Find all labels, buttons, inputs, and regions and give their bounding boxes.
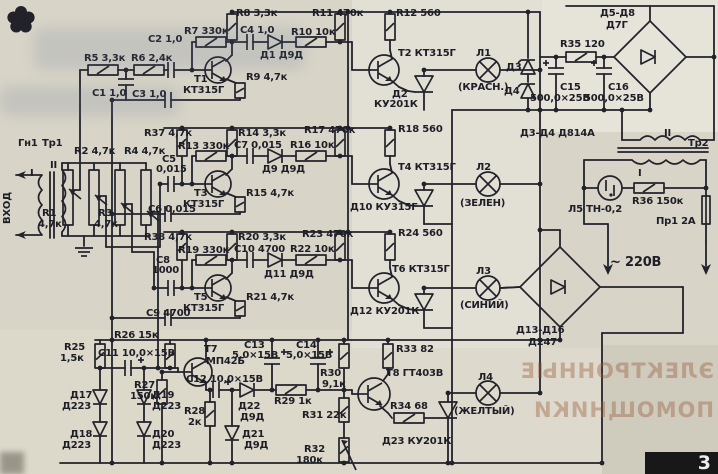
component-label: Д12 КУ201К [350, 306, 420, 317]
component-label: С7 0,015 [234, 140, 282, 151]
component-label: Д9Д [244, 440, 268, 451]
component-label: R26 15к [114, 330, 159, 341]
component-label: Д10 КУ315Г [350, 202, 418, 213]
component-label: (КРАСН.) [458, 82, 508, 93]
junction-dot [158, 182, 163, 187]
junction-dot [338, 40, 343, 45]
component-label: Д20 [152, 429, 174, 440]
component-label: С6 0,015 [148, 204, 196, 215]
junction-dot [338, 258, 343, 263]
component-label: Д7Г [606, 20, 628, 31]
ink-smudge [0, 452, 24, 474]
component-label: КУ201К [374, 99, 419, 110]
component-label: Д247 [528, 337, 557, 348]
junction-dot [422, 182, 427, 187]
junction-dot [602, 108, 607, 113]
junction-dot [388, 10, 393, 15]
neon-lamp-symbol [609, 193, 612, 196]
potentiometer-symbol [141, 170, 151, 225]
component-label: Д3 [506, 62, 522, 73]
resistor-symbol [236, 88, 244, 93]
component-label: Д19 [152, 390, 174, 401]
junction-dot [558, 338, 563, 343]
junction-dot [446, 391, 451, 396]
resistor-symbol [236, 202, 244, 207]
component-label: I [638, 168, 642, 179]
junction-dot [538, 391, 543, 396]
component-label: Т7 [204, 344, 218, 355]
component-label: Д223 [152, 401, 181, 412]
component-label: R4 4,7к [124, 146, 166, 157]
component-label: R14 3,3к [238, 128, 286, 139]
component-label: Д21 [242, 429, 264, 440]
component-label: С11 10,0×15В [98, 348, 175, 359]
component-label: R37 4,7к [144, 128, 192, 139]
component-label: R33 82 [396, 344, 434, 355]
page-number-box: 3 [645, 452, 718, 474]
component-label: Д5-Д8 [600, 8, 635, 19]
junction-dot [230, 126, 235, 131]
junction-dot [230, 154, 235, 159]
junction-dot [270, 388, 275, 393]
resistor-symbol [205, 152, 217, 160]
bridge-rectifier-symbol [551, 280, 565, 294]
component-label: R9 4,7к [246, 72, 288, 83]
junction-dot [602, 55, 607, 60]
component-label: Д13-Д16 [516, 325, 565, 336]
junction-dot [422, 286, 427, 291]
component-label: (ЖЕЛТЫЙ) [454, 404, 514, 417]
junction-dot [526, 108, 531, 113]
component-label: R31 22к [302, 410, 347, 421]
component-label: R1 [42, 208, 57, 219]
junction-dot [168, 366, 173, 371]
junction-dot [316, 388, 321, 393]
junction-dot [110, 316, 115, 321]
resistor-symbol [336, 243, 344, 251]
component-label: 500,0×25В [584, 93, 644, 104]
junction-dot [342, 338, 347, 343]
component-label: Л5 ТН-0,2 [568, 204, 622, 215]
component-label: С9 4700 [146, 308, 190, 319]
component-label: Д23 КУ201К [382, 436, 452, 447]
resistor-symbol [643, 184, 655, 192]
component-label: 4,7к [94, 219, 118, 230]
flower-asterisk-icon [17, 16, 25, 24]
junction-dot [600, 461, 605, 466]
junction-dot [230, 388, 235, 393]
diode-symbol [268, 149, 282, 163]
junction-dot [152, 286, 157, 291]
component-label: Д223 [152, 440, 181, 451]
component-label: (ЗЕЛЕН) [460, 198, 505, 209]
component-label: Т3 [194, 188, 208, 199]
component-label: Т2 КТ315Г [398, 48, 457, 59]
component-label: Л3 [476, 266, 491, 277]
junction-dot [388, 230, 393, 235]
junction-dot [230, 461, 235, 466]
resistor-symbol [205, 256, 217, 264]
component-label: Д17 [70, 390, 92, 401]
component-label: R13 330к [178, 141, 230, 152]
component-label: Д18 [70, 429, 92, 440]
junction-dot [180, 286, 185, 291]
component-label: R34 68 [390, 401, 428, 412]
component-label: (СИНИЙ) [460, 298, 509, 311]
resistor-symbol [305, 38, 317, 46]
junction-dot [554, 55, 559, 60]
component-label: II [50, 160, 57, 171]
component-label: 9,1к [322, 379, 346, 390]
ghost-print-blob [0, 86, 180, 116]
junction-dot [538, 108, 543, 113]
component-label: Т1 [194, 74, 208, 85]
resistor-symbol [236, 306, 244, 311]
magazine-page: Гн1Тр1ВХОДIIIR14,7кR2 4,7кR34,7кR4 4,7кR… [0, 0, 718, 474]
ghost-print-blob [34, 28, 304, 70]
junction-dot [712, 55, 717, 60]
component-label: 0,015 [156, 164, 187, 175]
junction-dot [388, 126, 393, 131]
component-label: Гн1 [18, 138, 38, 149]
component-label: R32 [304, 444, 325, 455]
junction-dot [208, 388, 213, 393]
component-label: С16 [608, 82, 629, 93]
ghost-headline-line: ЭЛЕКТРОННЫЕ [546, 352, 714, 391]
junction-dot [160, 370, 165, 375]
component-label: Д22 [238, 401, 260, 412]
component-label: 1,5к [60, 353, 84, 364]
component-label: R17 470к [304, 125, 356, 136]
junction-dot [98, 366, 103, 371]
component-label: R25 [64, 342, 85, 353]
resistor-symbol [336, 23, 344, 31]
neon-lamp-symbol [598, 176, 622, 200]
junction-dot [230, 230, 235, 235]
component-label: Л1 [476, 48, 491, 59]
junction-dot [704, 186, 709, 191]
transistor-symbol [212, 173, 226, 181]
component-label: R29 1к [274, 396, 312, 407]
component-label: R15 4,7к [246, 188, 294, 199]
ghost-headline-line: ПОМОЩНИКИ [546, 391, 714, 430]
junction-dot [190, 286, 195, 291]
component-label: R30 [320, 368, 341, 379]
resistor-symbol [336, 139, 344, 147]
wire [500, 287, 520, 288]
component-label: R8 3,3к [236, 8, 278, 19]
component-label: Тр1 [42, 138, 63, 149]
component-label: Т4 КТ315Г [398, 162, 457, 173]
component-label: Д9 Д9Д [262, 164, 305, 175]
component-label: С15 [560, 82, 581, 93]
component-label: II [664, 128, 671, 139]
junction-dot [526, 10, 531, 15]
junction-dot [582, 186, 587, 191]
component-label: С10 4700 [234, 244, 285, 255]
component-label: Т5 [194, 292, 208, 303]
component-label: 5,0×15В [232, 350, 278, 361]
junction-dot [554, 108, 559, 113]
component-label: Д3-Д4 Д814А [520, 128, 595, 139]
component-label: R20 3,3к [238, 232, 286, 243]
ghost-headline: ЭЛЕКТРОННЫЕ ПОМОЩНИКИ [546, 352, 714, 430]
component-label: КТ315Г [183, 85, 225, 96]
junction-dot [190, 182, 195, 187]
junction-dot [230, 258, 235, 263]
component-label: 5,0×15В [286, 350, 332, 361]
diode-symbol [268, 253, 282, 267]
component-label: R35 120 [560, 39, 605, 50]
resistor-symbol [305, 152, 317, 160]
component-label: Д9Д [240, 412, 264, 423]
component-label: R38 4,7к [144, 232, 192, 243]
junction-dot [180, 182, 185, 187]
component-label: Д11 Д9Д [264, 269, 314, 280]
junction-dot [204, 338, 209, 343]
junction-dot [156, 366, 161, 371]
junction-dot [208, 461, 213, 466]
component-label: 4,7к [38, 219, 62, 230]
component-label: ~ 220В [610, 255, 661, 270]
junction-dot [538, 182, 543, 187]
junction-dot [620, 108, 625, 113]
component-label: R12 560 [396, 8, 441, 19]
component-label: R19 330к [178, 245, 230, 256]
junction-dot [230, 10, 235, 15]
component-label: R28 [184, 406, 205, 417]
component-label: R11 470к [312, 8, 364, 19]
component-label: Пр1 2А [656, 216, 696, 227]
component-label: 500,0×25В [530, 93, 590, 104]
junction-dot [538, 228, 543, 233]
component-label: R16 10к [290, 140, 335, 151]
coil-symbol [632, 160, 700, 164]
component-label: R21 4,7к [246, 292, 294, 303]
component-label: Д223 [62, 401, 91, 412]
component-label: R24 560 [398, 228, 443, 239]
junction-dot [648, 108, 653, 113]
component-label: 2к [188, 417, 202, 428]
component-label: 180к [296, 455, 323, 466]
component-label: С12 10,0×15В [186, 374, 263, 385]
junction-dot [422, 68, 427, 73]
component-label: Л2 [476, 162, 491, 173]
junction-dot [338, 154, 343, 159]
component-label: 1000 [152, 265, 179, 276]
component-label: Т8 ГТ403В [386, 368, 443, 379]
potentiometer-symbol [115, 170, 125, 225]
transistor-symbol [212, 277, 226, 285]
junction-dot [538, 68, 543, 73]
junction-dot [160, 461, 165, 466]
component-label: Тр2 [688, 138, 709, 149]
page-number: 3 [645, 452, 718, 474]
junction-dot [386, 338, 391, 343]
component-label: Д4 [504, 86, 520, 97]
component-label: Л4 [478, 372, 493, 383]
junction-dot [270, 338, 275, 343]
junction-dot [110, 461, 115, 466]
component-label: ВХОД [2, 192, 13, 224]
wire [408, 91, 415, 92]
component-label: R18 560 [398, 124, 443, 135]
component-label: R22 10к [290, 244, 335, 255]
junction-dot [142, 366, 147, 371]
component-label: Т6 КТ315Г [392, 264, 451, 275]
component-label: R23 470к [302, 229, 354, 240]
resistor-symbol [305, 256, 317, 264]
component-label: I [30, 168, 34, 179]
component-label: R2 4,7к [74, 146, 116, 157]
junction-dot [450, 461, 455, 466]
junction-dot [342, 461, 347, 466]
component-label: Д223 [62, 440, 91, 451]
paper-patch [542, 0, 718, 132]
component-label: R36 150к [632, 196, 684, 207]
component-label: R3 [98, 208, 113, 219]
